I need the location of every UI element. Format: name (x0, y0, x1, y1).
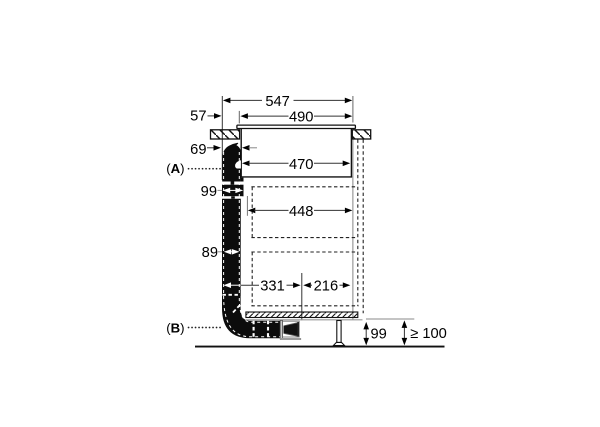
svg-text:470: 470 (289, 157, 314, 173)
svg-text:57: 57 (190, 109, 206, 125)
svg-text:69: 69 (190, 142, 206, 158)
svg-text:331: 331 (260, 278, 285, 294)
svg-text:490: 490 (289, 110, 314, 126)
svg-text:99: 99 (201, 184, 217, 200)
svg-text:216: 216 (314, 278, 339, 294)
svg-text:547: 547 (265, 94, 290, 110)
svg-text:(B): (B) (166, 320, 184, 335)
svg-text:(A): (A) (166, 161, 184, 176)
svg-text:≥ 100: ≥ 100 (410, 326, 447, 342)
svg-text:99: 99 (371, 326, 387, 342)
svg-text:448: 448 (289, 204, 314, 220)
svg-text:89: 89 (202, 245, 218, 261)
